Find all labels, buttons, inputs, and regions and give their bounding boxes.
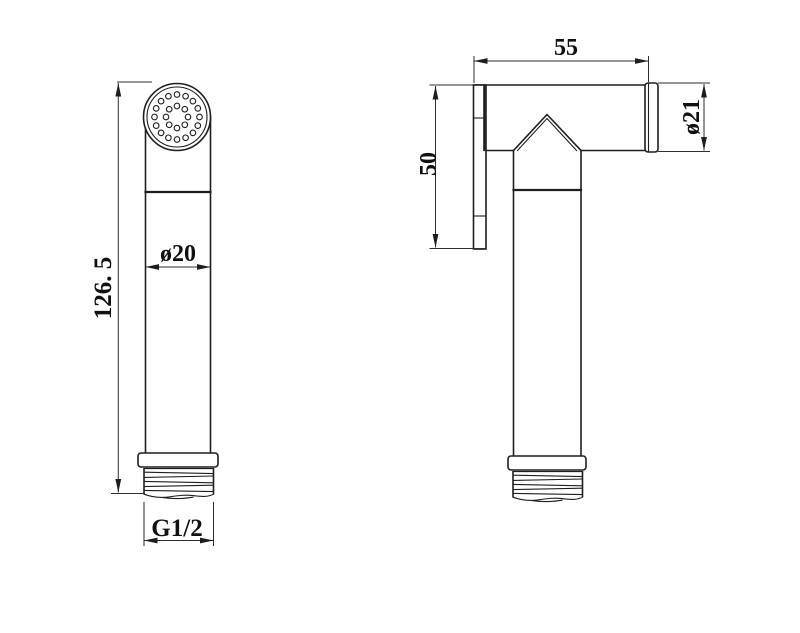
side-flange bbox=[508, 456, 586, 470]
side-handle bbox=[514, 151, 582, 457]
spray-head bbox=[144, 84, 211, 151]
front-handle bbox=[146, 117, 211, 453]
side-view: 55 50 ø21 bbox=[416, 35, 710, 502]
spray-face-outer-circle bbox=[144, 84, 211, 151]
dim-head-length: 55 bbox=[474, 35, 649, 83]
front-thread bbox=[144, 469, 214, 499]
front-flange bbox=[138, 453, 218, 467]
side-head bbox=[474, 83, 659, 249]
head-end-cap bbox=[645, 83, 658, 152]
front-view: 126. 5 ø20 G1/2 bbox=[90, 82, 218, 546]
dim-overall-height: 126. 5 bbox=[90, 82, 152, 494]
side-cone bbox=[514, 115, 582, 151]
dim-face-height-label: 50 bbox=[416, 152, 442, 176]
dim-head-diameter-label: ø20 bbox=[160, 241, 196, 267]
dim-head-diameter: ø20 bbox=[146, 241, 211, 267]
dim-height-label: 126. 5 bbox=[90, 257, 117, 320]
dim-thread-label: G1/2 bbox=[151, 515, 202, 542]
side-thread bbox=[513, 472, 583, 502]
dim-body-diameter: ø21 bbox=[658, 83, 710, 152]
technical-drawing: 126. 5 ø20 G1/2 bbox=[0, 0, 800, 633]
drawing-canvas: 126. 5 ø20 G1/2 bbox=[0, 0, 800, 633]
dim-thread: G1/2 bbox=[144, 502, 214, 546]
dim-head-length-label: 55 bbox=[554, 35, 578, 61]
dim-body-diameter-label: ø21 bbox=[679, 99, 705, 135]
